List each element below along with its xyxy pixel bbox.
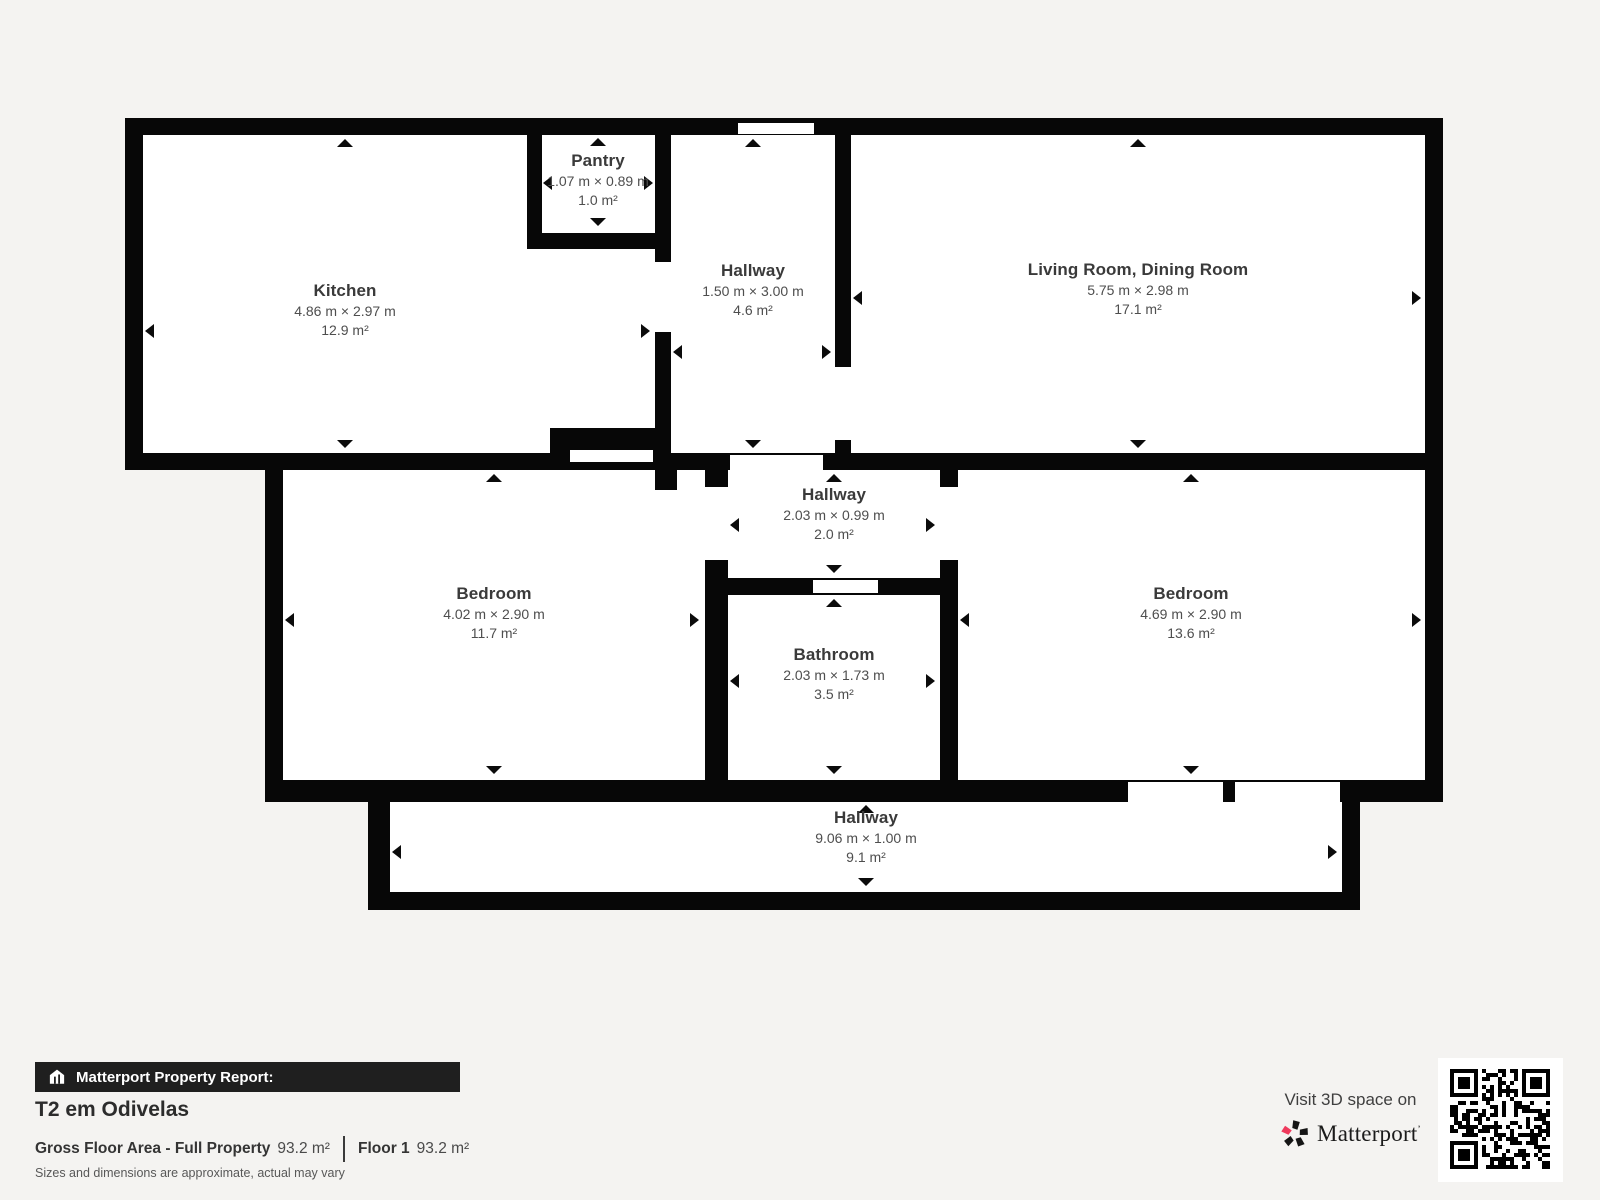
door-opening — [730, 455, 823, 470]
floor-area-summary: Gross Floor Area - Full Property 93.2 m²… — [35, 1136, 469, 1162]
room-bathroom — [728, 595, 940, 780]
measure-arrow-up-icon — [486, 474, 502, 482]
property-title: T2 em Odivelas — [35, 1098, 189, 1122]
measure-arrow-up-icon — [826, 474, 842, 482]
room-hallway-top — [671, 135, 835, 453]
room-bedroom-left — [283, 470, 705, 780]
measure-arrow-left-icon — [730, 518, 739, 532]
measure-arrow-up-icon — [1183, 474, 1199, 482]
measure-arrow-right-icon — [1412, 613, 1421, 627]
report-header-bar: Matterport Property Report: — [35, 1062, 460, 1092]
report-bar-label: Matterport Property Report: — [76, 1069, 274, 1086]
wall — [705, 595, 728, 802]
matterport-logo: Matterport’ — [1258, 1119, 1443, 1149]
measure-arrow-left-icon — [730, 674, 739, 688]
wall — [368, 892, 1360, 910]
house-chart-icon — [48, 1068, 66, 1086]
measure-arrow-down-icon — [826, 565, 842, 573]
measure-arrow-left-icon — [853, 291, 862, 305]
trademark-mark: ’ — [1417, 1124, 1421, 1135]
floor-value: 93.2 m² — [417, 1140, 470, 1158]
wall — [1425, 118, 1443, 470]
visit-label: Visit 3D space on — [1258, 1090, 1443, 1110]
measure-arrow-down-icon — [1130, 440, 1146, 448]
gross-floor-area-label: Gross Floor Area - Full Property — [35, 1140, 270, 1158]
measure-arrow-up-icon — [826, 599, 842, 607]
measure-arrow-right-icon — [1412, 291, 1421, 305]
wall — [368, 780, 390, 910]
measure-arrow-up-icon — [745, 139, 761, 147]
room-hallway-mid — [728, 470, 940, 578]
door-opening — [940, 487, 958, 560]
measure-arrow-left-icon — [145, 324, 154, 338]
measure-arrow-left-icon — [673, 345, 682, 359]
disclaimer-text: Sizes and dimensions are approximate, ac… — [35, 1166, 345, 1180]
measure-arrow-down-icon — [745, 440, 761, 448]
wall — [527, 118, 542, 249]
floor-label: Floor 1 — [358, 1140, 410, 1158]
measure-arrow-up-icon — [1130, 139, 1146, 147]
door-opening — [655, 262, 671, 332]
wall — [265, 453, 283, 802]
measure-arrow-left-icon — [543, 176, 552, 190]
wall — [940, 595, 958, 802]
wall — [125, 118, 143, 470]
measure-arrow-right-icon — [690, 613, 699, 627]
matterport-wordmark: Matterport’ — [1317, 1121, 1421, 1147]
room-bedroom-right — [958, 470, 1425, 780]
measure-arrow-up-icon — [337, 139, 353, 147]
measure-arrow-down-icon — [858, 878, 874, 886]
door-opening — [705, 487, 728, 560]
door-opening — [813, 580, 878, 593]
measure-arrow-up-icon — [590, 138, 606, 146]
measure-arrow-right-icon — [644, 176, 653, 190]
measure-arrow-right-icon — [641, 324, 650, 338]
room-living-dining — [851, 135, 1425, 453]
measure-arrow-right-icon — [1328, 845, 1337, 859]
measure-arrow-down-icon — [337, 440, 353, 448]
measure-arrow-left-icon — [392, 845, 401, 859]
door-opening — [835, 367, 851, 440]
visit-3d-cta: Visit 3D space on Matterport’ — [1258, 1090, 1443, 1149]
gross-floor-area-value: 93.2 m² — [277, 1140, 330, 1158]
measure-arrow-down-icon — [826, 766, 842, 774]
measure-arrow-right-icon — [926, 518, 935, 532]
property-report-page: Pantry 1.07 m × 0.89 m 1.0 m² Kitchen 4.… — [0, 0, 1600, 1200]
door-opening — [1235, 782, 1340, 802]
wall — [1342, 802, 1360, 910]
measure-arrow-down-icon — [486, 766, 502, 774]
measure-arrow-left-icon — [285, 613, 294, 627]
qr-code — [1438, 1058, 1563, 1182]
door-opening — [570, 450, 653, 462]
measure-arrow-right-icon — [926, 674, 935, 688]
window-opening — [738, 123, 814, 134]
measure-arrow-right-icon — [822, 345, 831, 359]
door-opening — [1128, 782, 1223, 802]
wall — [655, 470, 677, 490]
measure-arrow-down-icon — [1183, 766, 1199, 774]
wall — [527, 233, 671, 249]
matterport-pinwheel-icon — [1280, 1119, 1310, 1149]
measure-arrow-down-icon — [590, 218, 606, 226]
measure-arrow-left-icon — [960, 613, 969, 627]
wall — [1425, 453, 1443, 802]
separator — [343, 1136, 345, 1162]
measure-arrow-up-icon — [858, 805, 874, 813]
